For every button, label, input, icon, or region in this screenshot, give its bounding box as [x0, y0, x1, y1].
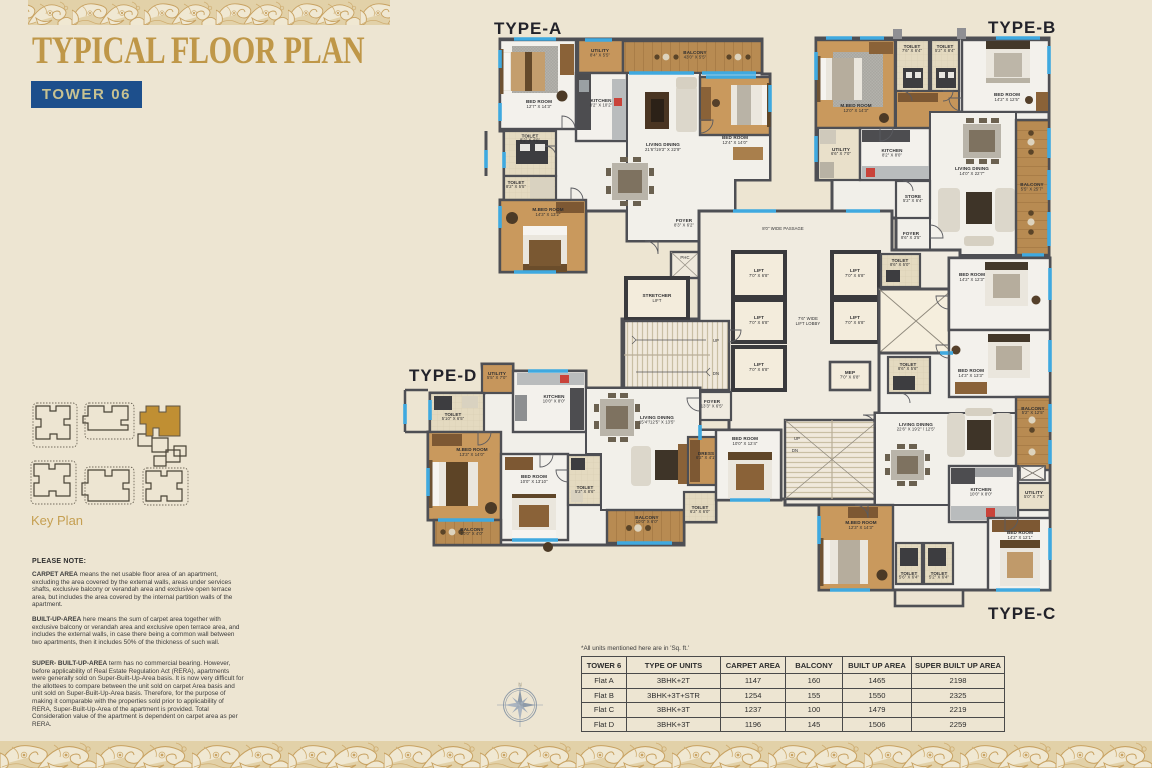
- svg-text:8'6" X 5'6": 8'6" X 5'6": [898, 366, 919, 371]
- svg-text:10'0" X 12'4": 10'0" X 12'4": [733, 441, 758, 446]
- svg-text:13'3" X 6'5": 13'3" X 6'5": [701, 404, 724, 409]
- svg-text:7'0" X 6'8": 7'0" X 6'8": [840, 375, 861, 380]
- svg-text:5'2" X 6'4": 5'2" X 6'4": [903, 198, 924, 203]
- svg-text:10'0" X 8'0": 10'0" X 8'0": [970, 492, 993, 497]
- svg-text:5'2" X 12'5": 5'2" X 12'5": [1022, 410, 1045, 415]
- svg-text:10'0" X 13'10": 10'0" X 13'10": [520, 479, 548, 484]
- svg-text:12'3" X 14'3": 12'3" X 14'3": [849, 525, 874, 530]
- svg-text:8'2" X 5'5": 8'2" X 5'5": [506, 184, 527, 189]
- svg-text:14'2" X 12'3": 14'2" X 12'3": [960, 277, 985, 282]
- svg-text:5'0" X 7'6": 5'0" X 7'6": [1024, 494, 1045, 499]
- svg-text:43'0" X 5'5": 43'0" X 5'5": [684, 55, 707, 60]
- svg-text:7'0" X 6'8": 7'0" X 6'8": [749, 320, 770, 325]
- svg-text:DN: DN: [713, 371, 719, 376]
- svg-text:21'6"/19'3" X 22'9": 21'6"/19'3" X 22'9": [645, 147, 681, 152]
- svg-text:5'6" X 6'4": 5'6" X 6'4": [899, 575, 920, 580]
- svg-text:8'6" X 3'5": 8'6" X 3'5": [901, 235, 922, 240]
- svg-text:6'2" X 6'0": 6'2" X 6'0": [690, 509, 711, 514]
- svg-text:DN: DN: [792, 448, 798, 453]
- svg-text:6'2" X 4'1": 6'2" X 4'1": [696, 455, 717, 460]
- svg-text:UP: UP: [794, 436, 800, 441]
- svg-text:14'2" X 12'1": 14'2" X 12'1": [1008, 535, 1033, 540]
- svg-text:8'6" X 5'0": 8'6" X 5'0": [890, 262, 911, 267]
- svg-text:7'0" X 6'8": 7'0" X 6'8": [749, 367, 770, 372]
- svg-text:5'2" X 8'6": 5'2" X 8'6": [575, 489, 596, 494]
- svg-text:14'3" X 13'3": 14'3" X 13'3": [959, 373, 984, 378]
- svg-text:14'2" X 12'5": 14'2" X 12'5": [995, 97, 1020, 102]
- svg-text:10'0" X 8'0": 10'0" X 8'0": [543, 399, 566, 404]
- svg-text:6'6" X 7'0": 6'6" X 7'0": [831, 151, 852, 156]
- svg-text:N: N: [518, 683, 522, 689]
- svg-text:5'2" X 6'4": 5'2" X 6'4": [929, 575, 950, 580]
- svg-text:7'6" X 6'4": 7'6" X 6'4": [902, 48, 923, 53]
- svg-text:8'2" X 4'0": 8'2" X 4'0": [520, 138, 541, 143]
- svg-text:14'0" X 22'7": 14'0" X 22'7": [960, 171, 985, 176]
- svg-text:12'7" X 14'3": 12'7" X 14'3": [527, 104, 552, 109]
- svg-text:12'4" X 14'0": 12'4" X 14'0": [723, 140, 748, 145]
- svg-text:8'0" WIDE PASSAGE: 8'0" WIDE PASSAGE: [762, 226, 804, 231]
- svg-text:LIFT: LIFT: [652, 298, 661, 303]
- svg-text:14'3" X 13'2": 14'3" X 13'2": [536, 212, 561, 217]
- svg-text:7'0" X 6'8": 7'0" X 6'8": [845, 273, 866, 278]
- svg-text:8'4" X 5'5": 8'4" X 5'5": [590, 53, 611, 58]
- svg-text:5'5" X 7'0": 5'5" X 7'0": [487, 375, 508, 380]
- svg-text:UP: UP: [713, 338, 719, 343]
- svg-text:5'2" X 8'4": 5'2" X 8'4": [935, 48, 956, 53]
- svg-text:8'2" X 8'0": 8'2" X 8'0": [882, 153, 903, 158]
- svg-text:10'0" X 4'0": 10'0" X 4'0": [461, 531, 484, 536]
- svg-text:8'3" X 6'2": 8'3" X 6'2": [674, 223, 695, 228]
- svg-text:7'0" X 6'8": 7'0" X 6'8": [749, 273, 770, 278]
- svg-text:22'6" X 19'2" / 12'5": 22'6" X 19'2" / 12'5": [897, 427, 936, 432]
- svg-text:15'4"/12'5" X 13'5": 15'4"/12'5" X 13'5": [639, 420, 675, 425]
- svg-text:13'3" X 14'0": 13'3" X 14'0": [460, 452, 485, 457]
- svg-text:LIFT LOBBY: LIFT LOBBY: [796, 321, 821, 326]
- svg-text:PHC: PHC: [680, 255, 689, 260]
- svg-text:8'2" X 10'2": 8'2" X 10'2": [590, 103, 613, 108]
- svg-text:5'5" X 25'7": 5'5" X 25'7": [1021, 187, 1044, 192]
- svg-text:10'0" X 6'0": 10'0" X 6'0": [636, 519, 659, 524]
- svg-text:5'10" X 6'5": 5'10" X 6'5": [442, 416, 465, 421]
- svg-text:12'0" X 14'3": 12'0" X 14'3": [844, 108, 869, 113]
- svg-text:7'0" X 6'8": 7'0" X 6'8": [845, 320, 866, 325]
